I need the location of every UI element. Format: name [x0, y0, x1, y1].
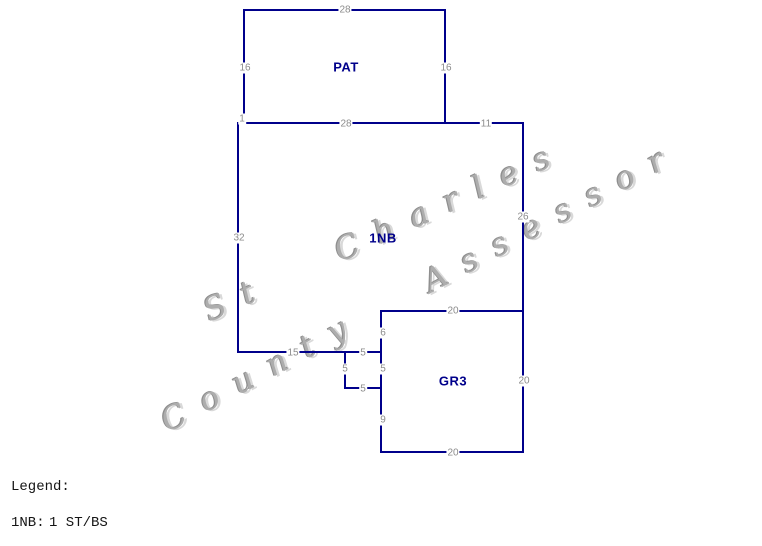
dim-gr3-top: 20: [446, 306, 459, 317]
legend-entry-1nb: 1NB:1 ST/BS: [11, 517, 192, 529]
dim-notch-bottom: 5: [359, 384, 367, 395]
assessor-sketch-page: St Charles County Assessor 28 16 16 1 28…: [0, 0, 762, 546]
dim-nb-left: 32: [232, 233, 245, 244]
area-label-gr3: GR3: [439, 374, 467, 389]
dim-gr3-right: 20: [517, 376, 530, 387]
dim-nb-top: 28: [339, 119, 352, 130]
dim-pat-left: 16: [238, 63, 251, 74]
area-label-pat: PAT: [333, 60, 359, 75]
dim-gr3-left-mid: 5: [379, 364, 387, 375]
dim-gr3-left-upper: 6: [379, 328, 387, 339]
dim-pat-top: 28: [338, 5, 351, 16]
dim-notch-left: 5: [341, 364, 349, 375]
legend: Legend: 1NB:1 ST/BS BSA:BASEMENT AREA GR…: [11, 457, 192, 546]
dim-nb-bottom-right: 5: [359, 348, 367, 359]
dim-nb-bottom-left: 15: [286, 348, 299, 359]
area-label-1nb: 1NB: [369, 231, 397, 246]
dim-nb-right: 26: [516, 212, 529, 223]
dim-nb-offset: 1: [238, 114, 246, 125]
dim-gr3-left-lower: 9: [379, 415, 387, 426]
legend-code-1nb: 1NB:: [11, 517, 49, 529]
legend-title: Legend:: [11, 481, 192, 493]
dim-gr3-bottom: 20: [446, 448, 459, 459]
dim-pat-right: 16: [439, 63, 452, 74]
dim-nb-top-right: 11: [480, 119, 492, 130]
legend-desc-1nb: 1 ST/BS: [49, 515, 108, 531]
